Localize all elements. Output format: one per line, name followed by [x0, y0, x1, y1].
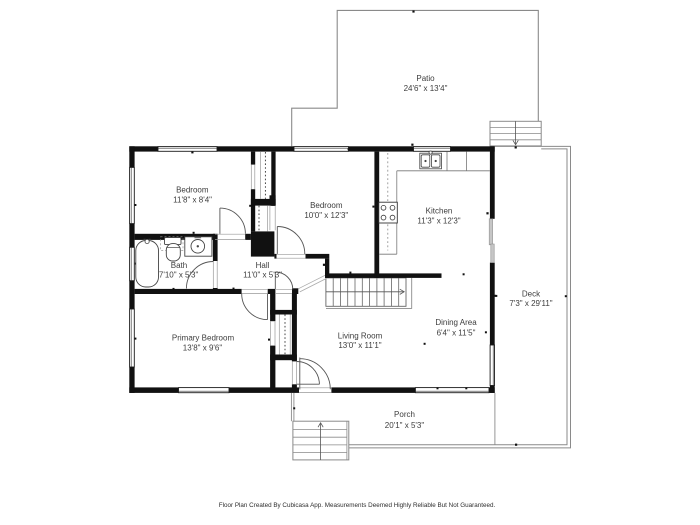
svg-text:7'10" x 5'3": 7'10" x 5'3" [159, 270, 199, 279]
svg-text:13'8" x 9'6": 13'8" x 9'6" [183, 344, 223, 353]
svg-text:6'4" x 11'5": 6'4" x 11'5" [437, 329, 476, 338]
svg-text:13'0" x 11'1": 13'0" x 11'1" [338, 341, 381, 350]
svg-text:11'8" x 8'4": 11'8" x 8'4" [173, 196, 212, 205]
svg-text:10'0" x 12'3": 10'0" x 12'3" [304, 211, 348, 220]
svg-text:Patio: Patio [416, 74, 435, 83]
svg-text:Living Room: Living Room [338, 332, 383, 341]
svg-text:11'0" x 5'3": 11'0" x 5'3" [243, 271, 282, 280]
svg-text:Primary Bedroom: Primary Bedroom [172, 334, 235, 343]
svg-text:11'3" x 12'3": 11'3" x 12'3" [417, 217, 460, 226]
svg-text:Bath: Bath [171, 261, 187, 270]
svg-text:24'6" x 13'4": 24'6" x 13'4" [404, 84, 448, 93]
svg-text:Dining Area: Dining Area [435, 318, 477, 327]
svg-text:Bedroom: Bedroom [176, 186, 209, 195]
svg-text:Deck: Deck [522, 289, 541, 298]
svg-text:Porch: Porch [394, 410, 415, 419]
svg-text:Hall: Hall [256, 261, 270, 270]
svg-text:Kitchen: Kitchen [426, 207, 453, 216]
svg-text:7'3" x 29'11": 7'3" x 29'11" [509, 299, 552, 308]
svg-text:Bedroom: Bedroom [310, 201, 343, 210]
svg-text:20'1" x 5'3": 20'1" x 5'3" [385, 421, 425, 430]
svg-text:Floor Plan Created By Cubicasa: Floor Plan Created By Cubicasa App. Meas… [219, 502, 496, 509]
